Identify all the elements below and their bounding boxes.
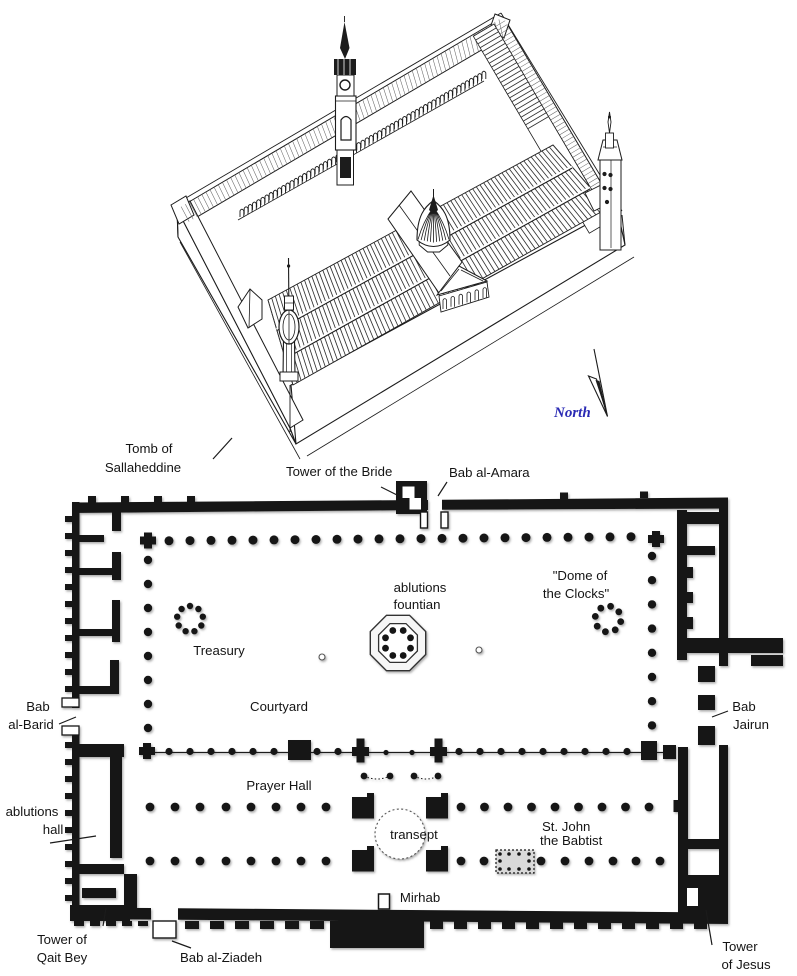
svg-text:the Babtist: the Babtist	[540, 833, 603, 848]
svg-text:Tomb of: Tomb of	[126, 441, 173, 456]
svg-text:Bab al-Ziadeh: Bab al-Ziadeh	[180, 950, 262, 965]
svg-text:transept: transept	[390, 827, 438, 842]
svg-text:Courtyard: Courtyard	[250, 699, 308, 714]
svg-text:Jairun: Jairun	[733, 717, 769, 732]
svg-text:Prayer Hall: Prayer Hall	[246, 778, 311, 793]
svg-text:ablutions: ablutions	[6, 804, 59, 819]
svg-text:Bab: Bab	[732, 699, 755, 714]
svg-text:St. John: St. John	[542, 819, 590, 834]
svg-text:Tower of: Tower of	[37, 932, 87, 947]
svg-text:Sallaheddine: Sallaheddine	[105, 460, 181, 475]
svg-text:"Dome of: "Dome of	[553, 568, 608, 583]
svg-text:Tower of the Bride: Tower of the Bride	[286, 464, 392, 479]
svg-text:fountian: fountian	[394, 597, 441, 612]
svg-text:ablutions: ablutions	[394, 580, 447, 595]
svg-text:Qait Bey: Qait Bey	[37, 950, 88, 965]
svg-text:Tower: Tower	[722, 939, 758, 954]
svg-text:of Jesus: of Jesus	[721, 957, 771, 972]
svg-text:the Clocks": the Clocks"	[543, 586, 610, 601]
svg-text:al-Barid: al-Barid	[8, 717, 53, 732]
svg-text:hall: hall	[43, 822, 64, 837]
svg-text:Bab al-Amara: Bab al-Amara	[449, 465, 530, 480]
svg-text:Treasury: Treasury	[193, 643, 245, 658]
svg-text:North: North	[553, 405, 591, 421]
svg-text:Bab: Bab	[26, 699, 49, 714]
svg-text:Mirhab: Mirhab	[400, 890, 440, 905]
